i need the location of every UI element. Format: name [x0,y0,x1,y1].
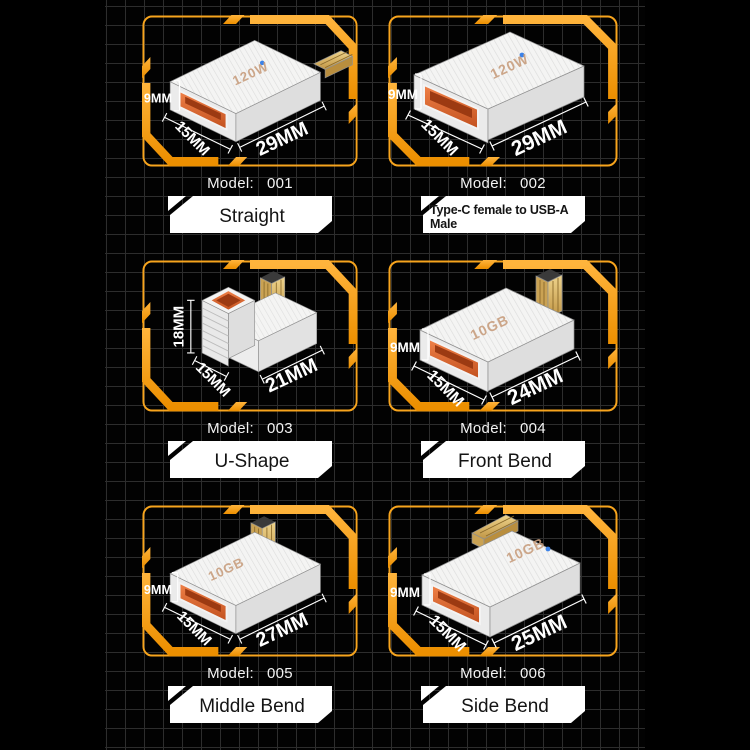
height-dimension-label: 9MM [390,340,420,355]
product-name-badge: U-Shape [167,441,333,479]
model-caption: Model:002 [388,175,618,192]
product-name-badge: Straight [167,196,333,234]
height-dimension-line [187,300,195,353]
product-cell-002: 120W 29MM 15MM 9MM Model:002 Type-C fema… [388,15,618,245]
adapter-illustration-straight: 120W 29MM 15MM 9MM [142,17,358,167]
product-name-badge: Side Bend [420,686,586,724]
model-number: 005 [267,665,293,682]
height-dimension-label: 9MM [144,91,172,105]
product-name: Type-C female to USB-A Male [430,199,580,234]
product-cell-005: 10GB 27MM 15MM 9MM Model:005 Middle Bend [142,505,358,735]
product-name: Side Bend [430,689,580,724]
height-dimension-label: 9MM [144,583,172,597]
adapter-illustration-straight-rear: 120W 29MM 15MM 9MM [388,17,618,167]
height-dimension-label: 18MM [170,306,187,348]
product-name: U-Shape [177,444,327,479]
model-number: 001 [267,175,293,192]
model-number: 004 [520,420,546,437]
model-label: Model: [207,175,254,192]
product-name-badge: Type-C female to USB-A Male [420,196,586,234]
model-number: 002 [520,175,546,192]
height-dimension-label: 9MM [388,87,418,102]
product-name: Front Bend [430,444,580,479]
adapter-illustration-front-bend: 10GB 24MM 15MM 9MM [388,262,618,412]
model-label: Model: [460,175,507,192]
adapter-illustration-side-bend: 10GB 25MM 15MM 9MM [388,507,618,657]
product-name-badge: Middle Bend [167,686,333,724]
model-caption: Model:005 [142,665,358,682]
model-caption: Model:003 [142,420,358,437]
model-label: Model: [207,420,254,437]
model-caption: Model:006 [388,665,618,682]
model-caption: Model:004 [388,420,618,437]
product-cell-004: 10GB 24MM 15MM 9MM Model:004 Front Bend [388,260,618,490]
height-dimension-label: 9MM [390,585,420,600]
product-cell-006: 10GB 25MM 15MM 9MM Model:006 Side Bend [388,505,618,735]
product-name: Middle Bend [177,689,327,724]
adapter-illustration-middle-bend: 10GB 27MM 15MM 9MM [142,507,358,657]
product-cell-001: 120W 29MM 15MM 9MM Model:001 Straight [142,15,358,245]
model-label: Model: [207,665,254,682]
product-name-badge: Front Bend [420,441,586,479]
model-label: Model: [460,665,507,682]
model-number: 003 [267,420,293,437]
product-image: 120W 29MM 15MM 9MM Model:001 Straight [0,0,750,750]
model-label: Model: [460,420,507,437]
adapter-illustration-u-shape: 18MM 15MM 21MM [142,262,358,412]
model-number: 006 [520,665,546,682]
product-cell-003: 18MM 15MM 21MM Model:003 U-Shape [142,260,358,490]
product-name: Straight [177,199,327,234]
model-caption: Model:001 [142,175,358,192]
